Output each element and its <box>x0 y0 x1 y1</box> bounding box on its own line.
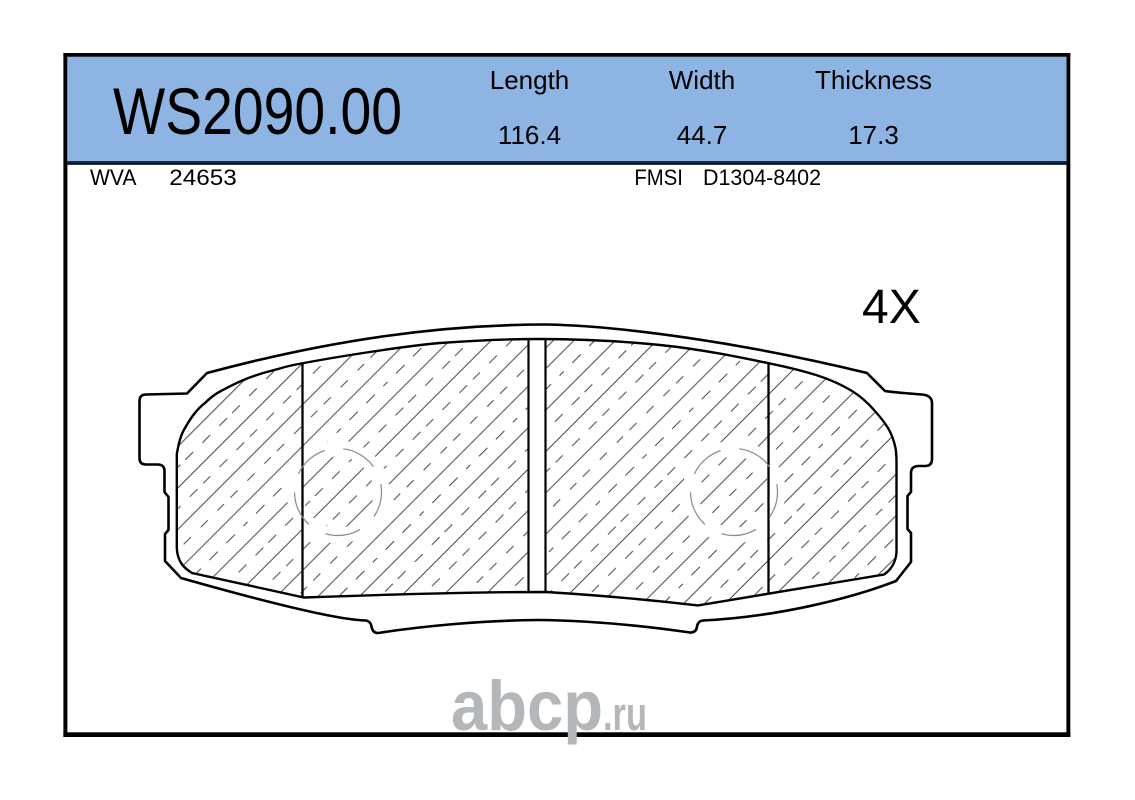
svg-text:WVA: WVA <box>90 165 137 190</box>
svg-text:44.7: 44.7 <box>677 120 728 150</box>
svg-text:Thickness: Thickness <box>815 65 932 95</box>
svg-text:Length: Length <box>490 65 570 95</box>
svg-text:116.4: 116.4 <box>498 120 561 150</box>
svg-text:abcp: abcp <box>451 666 603 745</box>
svg-text:D1304-8402: D1304-8402 <box>703 165 821 190</box>
svg-text:FMSI: FMSI <box>634 165 683 190</box>
svg-text:24653: 24653 <box>169 165 237 190</box>
svg-text:17.3: 17.3 <box>848 120 899 150</box>
svg-text:4X: 4X <box>862 281 921 334</box>
svg-text:WS2090.00: WS2090.00 <box>113 74 402 148</box>
svg-text:.ru: .ru <box>603 688 647 741</box>
svg-text:Width: Width <box>669 65 735 95</box>
